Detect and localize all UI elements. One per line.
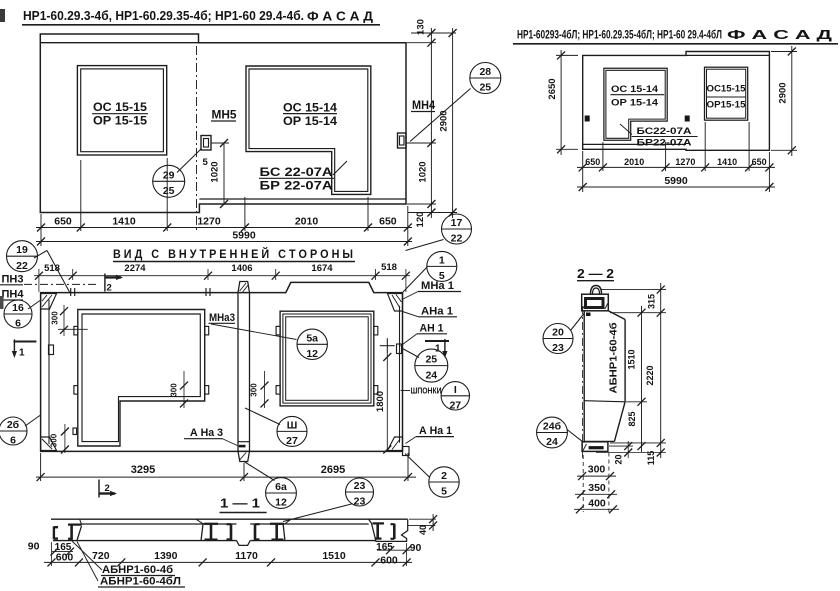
- svg-text:АБНР1-60-4б: АБНР1-60-4б: [102, 564, 173, 576]
- svg-text:МН4: МН4: [412, 100, 436, 112]
- svg-text:350: 350: [588, 482, 606, 494]
- svg-text:5990: 5990: [232, 230, 256, 242]
- svg-text:2220: 2220: [645, 365, 655, 385]
- svg-text:3295: 3295: [131, 464, 155, 476]
- svg-text:23: 23: [552, 342, 564, 354]
- svg-text:650: 650: [752, 157, 767, 167]
- svg-text:МН5: МН5: [212, 110, 238, 122]
- svg-text:165: 165: [376, 542, 393, 553]
- svg-text:1 — 1: 1 — 1: [220, 497, 260, 511]
- svg-text:1410: 1410: [717, 157, 737, 167]
- svg-text:90: 90: [410, 542, 422, 554]
- svg-text:А На 1: А На 1: [419, 425, 452, 437]
- svg-text:2: 2: [441, 470, 447, 482]
- svg-text:315: 315: [647, 294, 657, 309]
- svg-text:Ф А С А Д: Ф А С А Д: [307, 9, 374, 24]
- svg-text:1: 1: [439, 254, 445, 266]
- svg-text:1270: 1270: [675, 157, 695, 167]
- svg-text:518: 518: [381, 262, 397, 273]
- svg-text:23: 23: [354, 496, 366, 508]
- svg-text:720: 720: [92, 550, 110, 562]
- svg-text:2010: 2010: [295, 216, 319, 228]
- svg-text:5990: 5990: [664, 175, 688, 187]
- svg-text:90: 90: [28, 541, 40, 553]
- svg-text:2 — 2: 2 — 2: [577, 267, 614, 281]
- svg-text:1510: 1510: [322, 550, 346, 562]
- svg-text:1020: 1020: [418, 161, 429, 182]
- svg-text:2: 2: [107, 283, 112, 294]
- svg-text:ОС 15-14: ОС 15-14: [611, 84, 659, 95]
- svg-text:ОР 15-14: ОР 15-14: [283, 114, 337, 128]
- svg-text:1674: 1674: [311, 263, 333, 274]
- svg-text:Ф А С А Д: Ф А С А Д: [727, 27, 833, 42]
- svg-text:1800: 1800: [375, 391, 386, 412]
- svg-text:300: 300: [588, 464, 606, 476]
- svg-text:2: 2: [105, 483, 110, 494]
- svg-text:5: 5: [441, 486, 447, 498]
- svg-text:1510: 1510: [627, 349, 637, 369]
- svg-text:650: 650: [585, 157, 600, 167]
- svg-text:300: 300: [250, 383, 259, 397]
- svg-text:ШПОНКИ: ШПОНКИ: [411, 387, 442, 396]
- svg-text:ОР15-15: ОР15-15: [707, 100, 747, 111]
- svg-text:БС22-07А: БС22-07А: [637, 126, 692, 137]
- svg-text:300: 300: [51, 311, 60, 325]
- svg-text:I: I: [454, 384, 457, 396]
- svg-text:20: 20: [552, 327, 564, 339]
- svg-text:В И Д С В Н У Т Р Е Н Н Е: В И Д С В Н У Т Р Е Н Н Е Й С Т О Р О Н …: [113, 248, 353, 261]
- svg-text:2900: 2900: [778, 82, 789, 103]
- svg-text:1270: 1270: [197, 216, 221, 228]
- svg-text:5: 5: [439, 270, 445, 282]
- svg-text:ОР 15-15: ОР 15-15: [93, 114, 147, 128]
- svg-text:2695: 2695: [321, 464, 345, 476]
- svg-text:1020: 1020: [210, 161, 221, 182]
- svg-text:650: 650: [54, 216, 72, 228]
- svg-text:ОР 15-14: ОР 15-14: [611, 98, 659, 109]
- svg-text:22: 22: [451, 233, 463, 245]
- svg-text:АН 1: АН 1: [420, 323, 444, 335]
- svg-text:23: 23: [354, 480, 366, 492]
- svg-text:ОС 15-15: ОС 15-15: [93, 100, 147, 114]
- svg-text:300: 300: [170, 383, 179, 397]
- svg-text:17: 17: [451, 217, 463, 229]
- svg-text:25: 25: [479, 82, 491, 94]
- svg-text:115: 115: [646, 451, 656, 466]
- svg-text:ПН3: ПН3: [2, 274, 24, 286]
- svg-text:ОС15-15: ОС15-15: [707, 84, 747, 95]
- svg-text:1170: 1170: [235, 550, 258, 562]
- svg-text:2650: 2650: [547, 78, 558, 99]
- svg-text:300: 300: [50, 433, 59, 447]
- svg-text:БС 22-07А: БС 22-07А: [260, 165, 333, 179]
- svg-text:12: 12: [275, 497, 287, 509]
- svg-text:518: 518: [44, 263, 60, 274]
- svg-text:12: 12: [306, 348, 318, 360]
- svg-text:825: 825: [627, 411, 637, 426]
- svg-text:АНа 1: АНа 1: [421, 306, 453, 318]
- svg-text:24: 24: [425, 369, 437, 381]
- svg-text:МНа3: МНа3: [209, 312, 235, 324]
- svg-text:2010: 2010: [624, 157, 644, 167]
- svg-text:600: 600: [56, 552, 74, 564]
- svg-text:НР1-60.29.3-4б, НР1-60.29.35-4: НР1-60.29.3-4б, НР1-60.29.35-4б; НР1-60 …: [23, 9, 304, 23]
- svg-text:27: 27: [286, 435, 298, 447]
- svg-text:25: 25: [425, 354, 437, 366]
- svg-text:2274: 2274: [124, 263, 146, 274]
- svg-text:2б: 2б: [7, 419, 20, 431]
- svg-text:ОС 15-14: ОС 15-14: [283, 101, 337, 115]
- svg-text:24: 24: [546, 436, 558, 448]
- svg-text:6: 6: [10, 435, 16, 447]
- svg-text:5: 5: [203, 157, 209, 168]
- svg-text:МНа 1: МНа 1: [421, 280, 454, 292]
- svg-text:6а: 6а: [275, 481, 287, 493]
- svg-text:40: 40: [418, 525, 428, 535]
- svg-text:400: 400: [588, 498, 606, 510]
- svg-text:120: 120: [415, 212, 426, 228]
- svg-text:НР1-60293-4бЛ; НР1-60.29.35-4б: НР1-60293-4бЛ; НР1-60.29.35-4бЛ; НР1-60 …: [517, 30, 722, 42]
- svg-text:29: 29: [163, 169, 175, 181]
- svg-text:1: 1: [19, 348, 25, 359]
- svg-text:22: 22: [16, 260, 28, 272]
- svg-text:1406: 1406: [231, 263, 252, 274]
- svg-text:БР 22-07А: БР 22-07А: [260, 179, 333, 193]
- svg-text:25: 25: [163, 185, 175, 197]
- svg-text:2900: 2900: [439, 110, 450, 131]
- svg-text:130: 130: [416, 19, 427, 35]
- svg-text:А На 3: А На 3: [190, 427, 223, 439]
- svg-text:Ш: Ш: [287, 419, 298, 431]
- svg-text:650: 650: [379, 216, 397, 228]
- svg-text:28: 28: [479, 66, 491, 78]
- svg-text:27: 27: [449, 400, 461, 412]
- svg-text:19: 19: [16, 244, 28, 256]
- svg-text:20: 20: [614, 454, 624, 464]
- svg-text:АБНР1-60-4бЛ: АБНР1-60-4бЛ: [100, 576, 181, 588]
- svg-text:6: 6: [15, 318, 21, 330]
- svg-text:ПН4: ПН4: [2, 289, 25, 301]
- svg-text:1410: 1410: [112, 216, 136, 228]
- svg-text:5а: 5а: [306, 332, 318, 344]
- svg-text:БР22-07А: БР22-07А: [637, 137, 692, 148]
- svg-text:600: 600: [380, 555, 398, 567]
- svg-text:1390: 1390: [154, 550, 178, 562]
- svg-text:АБНР1-60-4б: АБНР1-60-4б: [608, 323, 620, 394]
- svg-text:16: 16: [12, 302, 24, 314]
- svg-text:24б: 24б: [543, 421, 562, 433]
